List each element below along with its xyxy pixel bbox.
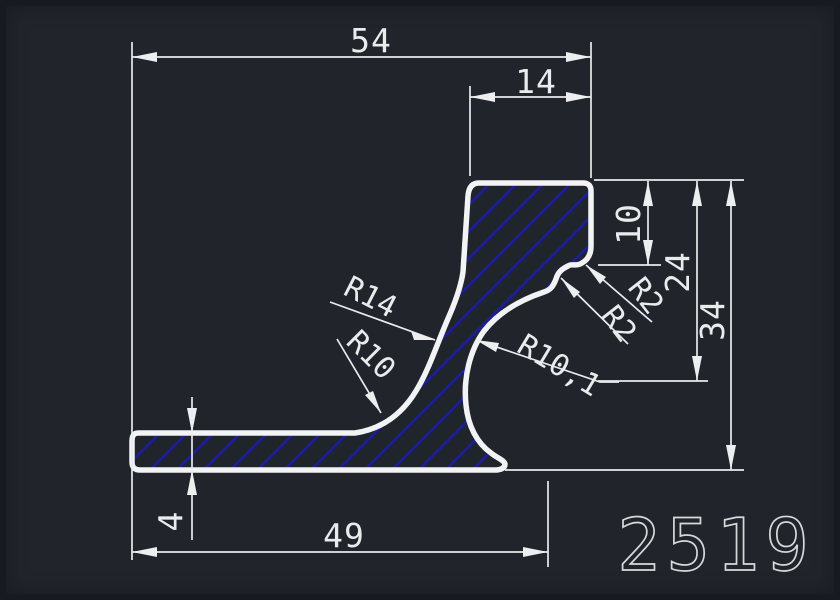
dim-text-4: 4: [151, 511, 190, 532]
arrow-r2-upper: [586, 265, 606, 284]
arrow-4-top: [187, 408, 197, 433]
arrow-54-left: [132, 52, 157, 62]
arrow-24-bottom: [692, 356, 702, 381]
dim-text-14: 14: [515, 62, 557, 101]
radius-text-r10: R10: [339, 324, 402, 387]
arrow-10-top: [643, 181, 653, 206]
arrow-34-bottom: [726, 445, 736, 470]
arrow-24-top: [692, 181, 702, 206]
arrow-54-right: [566, 52, 591, 62]
arrow-r10: [365, 391, 381, 413]
dim-text-24: 24: [658, 251, 697, 293]
radius-text-r14: R14: [338, 270, 402, 326]
dim-text-54: 54: [350, 21, 392, 60]
part-number: 2519: [617, 503, 814, 587]
radius-text-r10-1: R10,1: [511, 328, 606, 405]
arrow-14-left: [470, 92, 495, 102]
arrow-34-top: [726, 181, 736, 206]
dim-text-49: 49: [323, 516, 365, 555]
arrow-49-right: [523, 547, 548, 557]
dim-text-34: 34: [693, 299, 732, 341]
cad-drawing-canvas: 54 14 10 24 34 4 49 R14 R10 R10,1 R2 R2 …: [0, 0, 840, 600]
arrow-14-right: [566, 92, 591, 102]
arrow-4-bottom: [187, 470, 197, 495]
dim-text-10: 10: [609, 203, 648, 245]
arrow-r10-1: [476, 340, 499, 352]
arrow-49-left: [132, 547, 157, 557]
